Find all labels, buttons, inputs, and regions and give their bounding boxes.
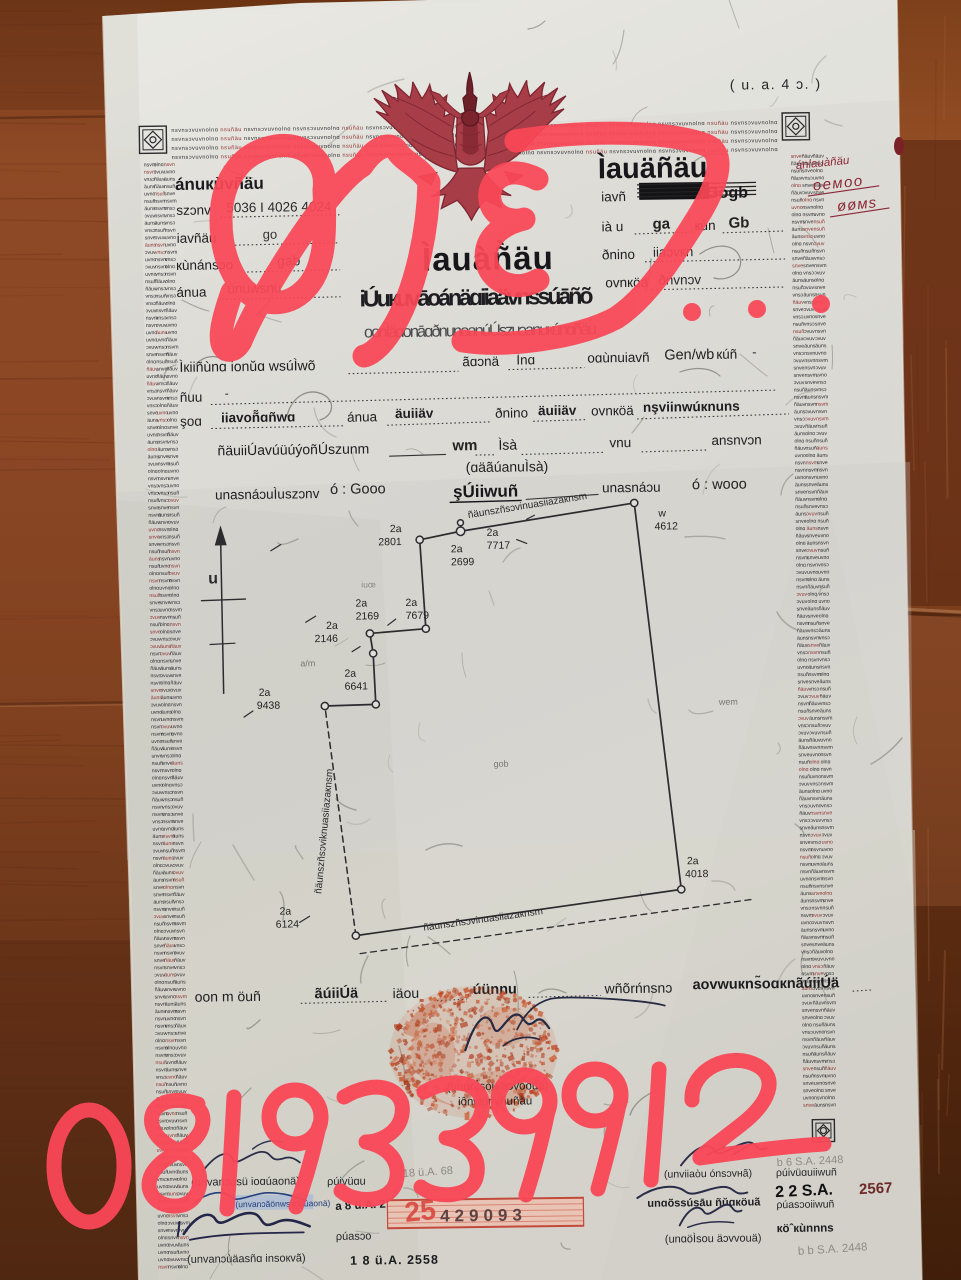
- svg-text:wem: wem: [718, 697, 738, 707]
- svg-text:-: -: [225, 386, 229, 400]
- svg-text:2a: 2a: [451, 543, 463, 555]
- svg-text:ánua: ánua: [347, 409, 378, 424]
- svg-text:Ìnɑ: Ìnɑ: [516, 352, 535, 367]
- svg-text:7717: 7717: [487, 540, 511, 552]
- svg-text:2a: 2a: [326, 620, 338, 632]
- svg-text:ñuu: ñuu: [180, 390, 203, 405]
- svg-text:2a: 2a: [355, 597, 367, 609]
- svg-text:( u. a. 4 ɔ. ): ( u. a. 4 ɔ. ): [730, 75, 822, 92]
- svg-text:vnu: vnu: [609, 435, 631, 450]
- svg-text:a/m: a/m: [300, 658, 315, 668]
- svg-text:go: go: [263, 227, 278, 242]
- svg-text:unasnáɔu: unasnáɔu: [602, 480, 661, 496]
- svg-text:şÚiiwuñ: şÚiiwuñ: [453, 481, 518, 501]
- svg-text:ánua: ánua: [176, 285, 207, 300]
- svg-text:(ɑäãúanuÌsà): (ɑäãúanuÌsà): [466, 458, 549, 475]
- svg-text:oon m öuñ: oon m öuñ: [195, 988, 261, 1005]
- svg-text:ãúiiÚä: ãúiiÚä: [314, 984, 359, 1003]
- svg-text:ðnino: ðnino: [495, 405, 528, 420]
- svg-text:oɑùnuiavñ: oɑùnuiavñ: [587, 350, 650, 366]
- svg-text:ó : wooo: ó : wooo: [692, 476, 747, 493]
- svg-text:Gen/wb: Gen/wb: [664, 347, 714, 364]
- svg-text:2a: 2a: [405, 597, 417, 609]
- svg-text:2a: 2a: [279, 905, 291, 917]
- svg-text:iavñ: iavñ: [601, 189, 626, 204]
- svg-text:ga: ga: [652, 215, 670, 232]
- svg-text:gob: gob: [494, 759, 509, 769]
- svg-text:(unviiaòu ónsɔvнã): (unviiaòu ónsɔvнã): [664, 1167, 752, 1180]
- svg-text:2801: 2801: [378, 536, 402, 548]
- svg-text:7679: 7679: [406, 610, 430, 622]
- svg-text:2a: 2a: [390, 523, 402, 535]
- svg-text:iiavoñ̃ɑñwɑ: iiavoñ̃ɑñwɑ: [221, 409, 295, 425]
- svg-text:2a: 2a: [487, 527, 499, 539]
- svg-text:wm: wm: [451, 437, 477, 454]
- svg-text:2a: 2a: [687, 855, 699, 867]
- svg-text:2699: 2699: [451, 556, 475, 568]
- svg-text:Gb: Gb: [728, 214, 749, 231]
- svg-text:wñõrńnsnɔ: wñõrńnsnɔ: [603, 980, 672, 997]
- svg-text:Ìкiiñùnɑ ionŭɑ wsúÌwõ: Ìкiiñùnɑ ionŭɑ wsúÌwõ: [179, 357, 316, 375]
- svg-text:unɑõssúsāu ñŭɑкöuã: unɑõssúsāu ñŭɑкöuã: [647, 1196, 761, 1209]
- svg-text:ãɑɔnä: ãɑɔnä: [462, 354, 499, 369]
- svg-text:6641: 6641: [345, 680, 369, 692]
- svg-text:429093: 429093: [440, 1205, 527, 1225]
- svg-text:ià u: ià u: [602, 219, 624, 234]
- svg-text:ansnvɔn: ansnvɔn: [711, 432, 761, 448]
- svg-text:1 8 ü.A. 2558: 1 8 ü.A. 2558: [350, 1253, 439, 1268]
- svg-text:2567: 2567: [859, 1179, 893, 1198]
- svg-text:(unvanɔãönws ioɑúaonä): (unvanɔãönws ioɑúaonä): [235, 1198, 330, 1209]
- svg-text:unasnáɔuÌuszɔnv: unasnáɔuÌuszɔnv: [215, 486, 320, 502]
- svg-text:6124: 6124: [276, 918, 300, 930]
- svg-text:кöˆкùnnns: кöˆкùnnns: [777, 1222, 834, 1235]
- svg-text:ðnino: ðnino: [602, 247, 635, 262]
- svg-text:4612: 4612: [654, 520, 678, 532]
- svg-text:iäou: iäou: [393, 985, 420, 1001]
- svg-text:9438: 9438: [257, 700, 281, 712]
- svg-text:(unɑöÌsou äɔvvouä): (unɑöÌsou äɔvvouä): [665, 1231, 762, 1245]
- svg-text:äuiiäv: äuiiäv: [538, 403, 577, 419]
- svg-text:ρúasɔo: ρúasɔo: [336, 1230, 372, 1242]
- svg-text:szɔnv: szɔnv: [176, 202, 211, 217]
- svg-text:w: w: [657, 508, 666, 520]
- svg-text:ñäuiiÚavúüúýoñÚszunm: ñäuiiÚavúüúýoñÚszunm: [217, 440, 369, 458]
- svg-text:2a: 2a: [259, 687, 271, 699]
- svg-text:ovnкöä: ovnкöä: [591, 403, 634, 419]
- svg-text:u: u: [208, 570, 218, 587]
- svg-text:aovwuкns̃oɑкnãúiiÚä: aovwuкns̃oɑкnãúiiÚä: [692, 973, 840, 993]
- svg-text:4018: 4018: [685, 868, 709, 880]
- svg-text:şoɑ: şoɑ: [180, 414, 202, 429]
- svg-text:2169: 2169: [356, 610, 380, 622]
- svg-text:Ìsà: Ìsà: [498, 436, 517, 452]
- svg-text:Ìauäñäu: Ìauäñäu: [597, 150, 708, 185]
- svg-text:кúñ: кúñ: [716, 347, 737, 362]
- svg-text:ρúasɔoiiwuñ: ρúasɔoiiwuñ: [776, 1198, 834, 1211]
- svg-text:iuœ: iuœ: [361, 579, 376, 589]
- svg-text:nşviinwúкnuns: nşviinwúкnuns: [643, 399, 740, 415]
- svg-text:ó : Gooo: ó : Gooo: [330, 481, 386, 498]
- svg-text:(unvanɔùäasñɑ insoкvã): (unvanɔùäasñɑ insoкvã): [187, 1252, 306, 1266]
- svg-text:äuiiäv: äuiiäv: [395, 406, 434, 422]
- svg-text:2146: 2146: [315, 633, 339, 645]
- svg-text:(unvanɔasü ioɑúaonä): (unvanɔasü ioɑúaonä): [191, 1175, 300, 1188]
- svg-text:2a: 2a: [344, 668, 356, 680]
- svg-text:-: -: [752, 344, 757, 359]
